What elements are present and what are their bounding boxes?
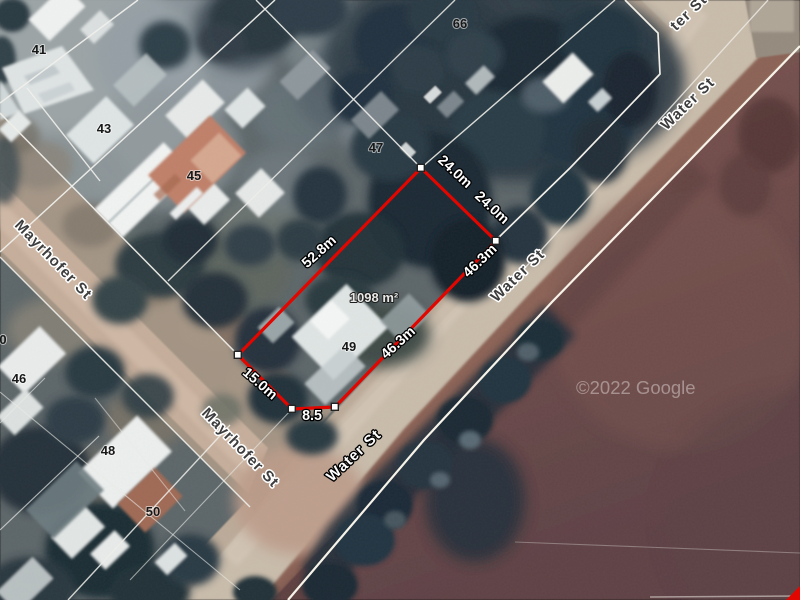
svg-text:0: 0: [0, 332, 7, 347]
svg-text:©2022 Google: ©2022 Google: [576, 377, 696, 398]
svg-text:8.5: 8.5: [302, 408, 322, 424]
svg-text:45: 45: [187, 168, 201, 183]
svg-text:1098 m²: 1098 m²: [350, 290, 399, 305]
svg-text:43: 43: [97, 121, 111, 136]
svg-text:50: 50: [146, 504, 160, 519]
svg-text:46: 46: [12, 371, 26, 386]
svg-text:48: 48: [101, 443, 115, 458]
svg-text:41: 41: [32, 42, 46, 57]
svg-text:49: 49: [342, 339, 356, 354]
svg-text:66: 66: [453, 16, 467, 31]
svg-text:47: 47: [369, 140, 383, 155]
